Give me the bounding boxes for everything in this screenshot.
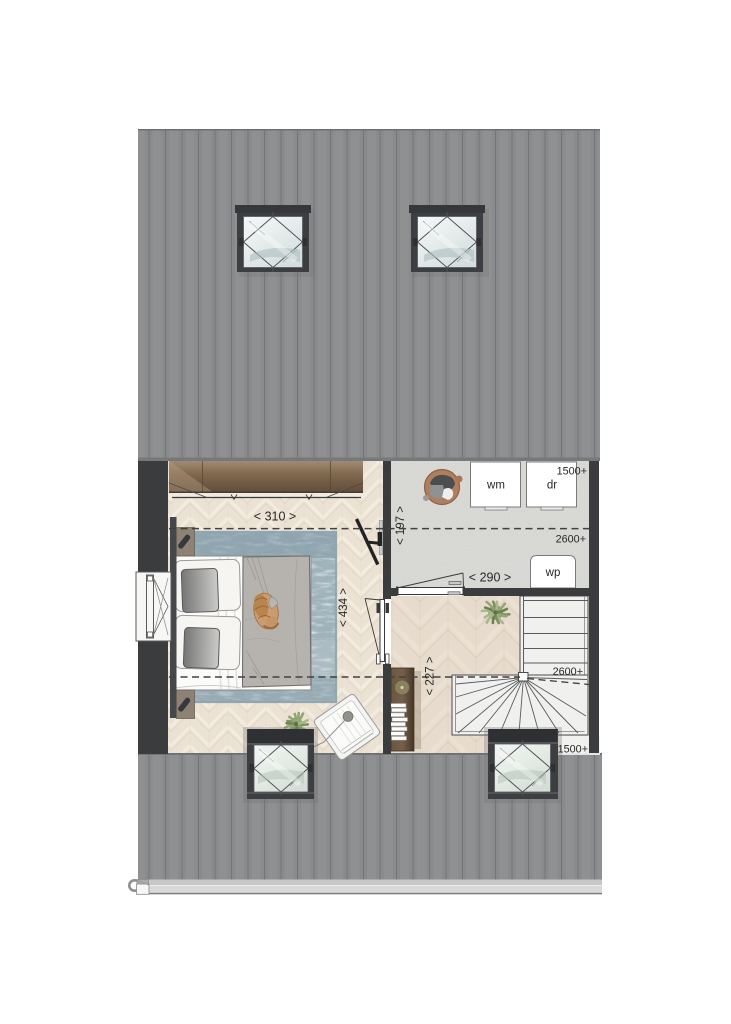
svg-text:< 434 >: < 434 > xyxy=(338,588,350,627)
svg-text:1500+: 1500+ xyxy=(558,744,588,756)
svg-text:< 290 >: < 290 > xyxy=(469,571,511,585)
svg-text:wm: wm xyxy=(486,480,505,492)
svg-text:dr: dr xyxy=(547,480,557,492)
svg-text:2600+: 2600+ xyxy=(553,666,583,678)
svg-text:2600+: 2600+ xyxy=(556,534,586,546)
svg-text:< 197 >: < 197 > xyxy=(395,506,407,545)
svg-text:< 227 >: < 227 > xyxy=(425,656,437,695)
svg-text:wp: wp xyxy=(545,567,561,579)
svg-text:< 310 >: < 310 > xyxy=(254,510,296,524)
svg-text:1500+: 1500+ xyxy=(557,466,587,478)
